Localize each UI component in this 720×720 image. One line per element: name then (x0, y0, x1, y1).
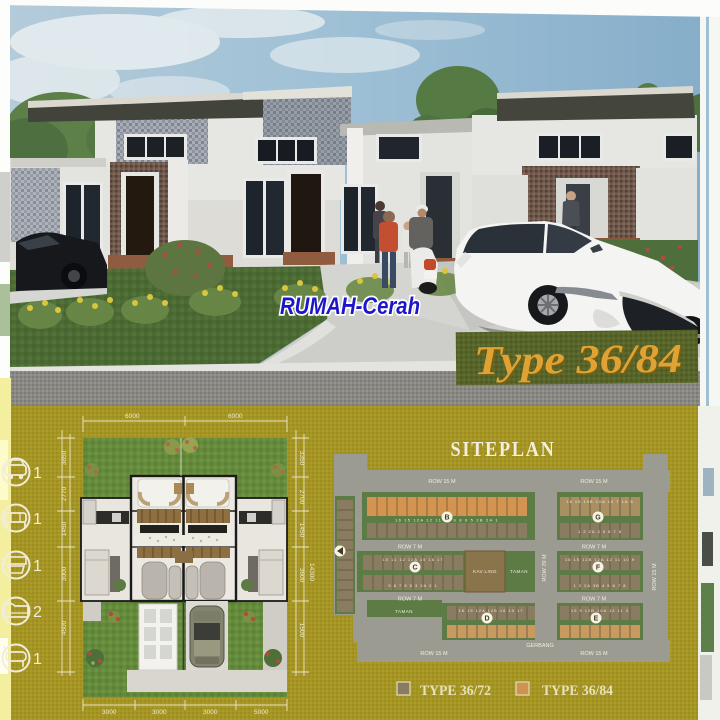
svg-text:TYPE 36/72: TYPE 36/72 (420, 683, 491, 699)
svg-text:G: G (595, 515, 601, 522)
svg-text:1 2 2A 3B 4 5 6 7 8: 1 2 2A 3B 4 5 6 7 8 (573, 583, 626, 588)
svg-text:3000: 3000 (203, 709, 218, 716)
svg-text:Type 36/84: Type 36/84 (474, 335, 682, 383)
svg-text:TAMAN: TAMAN (395, 609, 413, 614)
svg-text:F: F (596, 565, 601, 572)
svg-text:1 2 2A 3 5 6 7 8: 1 2 2A 3 5 6 7 8 (578, 529, 622, 534)
svg-text:6000: 6000 (125, 413, 140, 420)
svg-text:D: D (484, 616, 489, 623)
svg-text:10 11 12 12A 15 16 17: 10 11 12 12A 15 16 17 (383, 557, 444, 562)
svg-text:SITEPLAN: SITEPLAN (451, 437, 556, 461)
svg-text:ROW 7 M: ROW 7 M (398, 597, 423, 603)
svg-text:ROW 7 M: ROW 7 M (398, 545, 423, 551)
svg-text:5000: 5000 (254, 709, 269, 716)
svg-text:ROW 15 M: ROW 15 M (420, 651, 448, 657)
svg-text:1450: 1450 (61, 521, 68, 536)
svg-text:16 15 12B 12A 12 11 10 9: 16 15 12B 12A 12 11 10 9 (565, 557, 635, 562)
svg-text:1: 1 (33, 651, 42, 668)
svg-text:1: 1 (33, 511, 42, 528)
svg-text:RUMAH-Cerah: RUMAH-Cerah (280, 293, 420, 320)
svg-text:GERBANG: GERBANG (526, 643, 554, 649)
svg-text:16 15 12A 12B 16 15 17: 16 15 12A 12B 16 15 17 (459, 608, 524, 613)
svg-text:3000: 3000 (152, 709, 167, 716)
svg-text:4500: 4500 (61, 620, 68, 635)
svg-text:14300: 14300 (308, 563, 315, 581)
svg-text:3600: 3600 (298, 568, 305, 583)
svg-text:3350: 3350 (298, 451, 305, 466)
svg-text:C: C (412, 565, 417, 572)
svg-text:2: 2 (33, 604, 42, 621)
svg-text:6000: 6000 (228, 413, 243, 420)
svg-text:3000: 3000 (102, 709, 117, 716)
svg-text:10 9 12B 10A 12 11 3: 10 9 12B 10A 12 11 3 (571, 608, 629, 613)
svg-text:ROW 15 M: ROW 15 M (652, 563, 658, 591)
svg-text:1500: 1500 (298, 623, 305, 638)
svg-text:2700: 2700 (298, 490, 305, 505)
svg-text:1450: 1450 (298, 523, 305, 538)
svg-text:ROW 7 M: ROW 7 M (582, 597, 607, 603)
svg-text:ROW 15 M: ROW 15 M (580, 651, 608, 657)
svg-text:3000: 3000 (61, 566, 68, 581)
svg-text:3850: 3850 (61, 450, 68, 465)
svg-text:KAV.LING: KAV.LING (473, 569, 497, 574)
svg-text:E: E (594, 616, 599, 623)
svg-text:2770: 2770 (61, 486, 68, 501)
svg-text:B: B (444, 515, 449, 522)
svg-text:ROW 15 M: ROW 15 M (428, 479, 456, 485)
svg-text:TAMAN: TAMAN (510, 569, 528, 574)
svg-text:ROW 15 M: ROW 15 M (580, 479, 608, 485)
svg-text:1: 1 (33, 558, 42, 575)
svg-text:TYPE 36/84: TYPE 36/84 (542, 683, 613, 699)
svg-text:9 8 7 6 5 3 2A 2 1: 9 8 7 6 5 3 2A 2 1 (388, 583, 437, 588)
svg-text:16 15 10B 10A 10 7 1A 8: 16 15 10B 10A 10 7 1A 8 (566, 499, 633, 504)
svg-text:ROW 7 M: ROW 7 M (582, 545, 607, 551)
svg-text:1: 1 (33, 465, 42, 482)
svg-text:ROW 70 M: ROW 70 M (542, 554, 548, 582)
